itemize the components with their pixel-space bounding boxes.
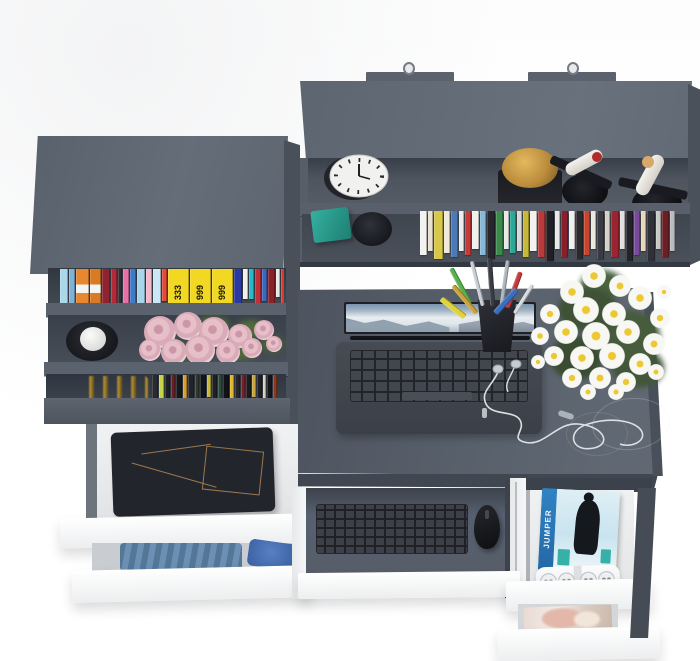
book-spine: [255, 269, 261, 305]
book-spine: [569, 211, 575, 249]
book-spine: [111, 269, 117, 306]
book-spine: [249, 269, 254, 299]
book-spine: [90, 269, 101, 306]
daisy-blossom: [554, 320, 578, 344]
daisy-blossom: [573, 297, 599, 323]
book-spine: [207, 375, 211, 397]
book-spine: [268, 269, 275, 306]
book-spine: [234, 269, 242, 305]
drawer-slide-rail: [86, 424, 97, 519]
white-candle-ball: [80, 327, 106, 351]
daisy-blossom: [531, 327, 549, 345]
bookshelf-base-board: [44, 398, 290, 424]
book-spine: [276, 269, 280, 297]
book-spine: [472, 211, 479, 249]
book-spine: [634, 211, 640, 255]
book-spine: [530, 211, 537, 251]
book-spine: [504, 211, 509, 249]
book-spine: 999: [212, 269, 233, 306]
book-spine: [459, 211, 464, 251]
book-spine: [597, 211, 604, 259]
book-spine: [60, 269, 68, 303]
drawer-front-lower[interactable]: [72, 565, 313, 603]
jumper-cover-art: [553, 489, 620, 574]
tray-front-panel[interactable]: [298, 571, 520, 599]
book-spine: [102, 269, 110, 306]
book-spine: [561, 211, 568, 257]
book-spine: [656, 211, 661, 249]
book-title: 999: [196, 285, 205, 300]
book-spine: [620, 211, 625, 249]
daisy-blossom: [582, 264, 606, 288]
book-spine: [146, 269, 152, 303]
book-spine: [195, 375, 199, 399]
book-spine: [76, 269, 89, 306]
daisy-blossom: [628, 286, 652, 310]
computer-mouse[interactable]: [474, 505, 500, 549]
book-spine: [555, 211, 560, 249]
book-spine: [480, 211, 486, 255]
wall-shelf-top-panel: [290, 81, 692, 161]
airplane-propeller: [592, 152, 602, 162]
book-title: 333: [174, 285, 183, 300]
jumper-book-cover: JUMPER: [538, 488, 620, 574]
rose-blossom: [266, 336, 282, 352]
book-spine: [218, 375, 222, 399]
book-spine: [465, 211, 471, 255]
pen-holder-group: [460, 260, 536, 354]
daisy-blossom: [540, 304, 560, 324]
book-spine: [159, 375, 164, 399]
rose-blossom: [216, 340, 240, 364]
book-spine: [69, 269, 75, 306]
book-spine: [252, 375, 256, 397]
book-spine: 999: [190, 269, 211, 306]
book-spine: [662, 211, 669, 257]
book-spine: [137, 269, 145, 306]
book-spine: [496, 211, 503, 255]
book-spine: [263, 375, 266, 398]
book-spine: [487, 211, 495, 259]
wall-shelf-book-row: [420, 211, 686, 264]
book-spine: [670, 211, 675, 251]
cover-teal-accent: [557, 549, 570, 566]
mouse-scroll-wheel: [485, 510, 489, 519]
book-spine: [434, 211, 443, 259]
book-spine: [641, 211, 646, 251]
book-spine: [230, 375, 234, 398]
laptop-spacebar[interactable]: [402, 392, 472, 400]
bookshelf-top-panel: [30, 136, 288, 274]
drawer-slide-rail: [526, 490, 530, 590]
hanging-hook-icon: [567, 62, 579, 75]
rose-flower-layer: [140, 312, 290, 368]
bookshelf-top-book-row: 333999999: [60, 269, 284, 306]
rose-blossom: [139, 339, 161, 361]
book-spine: [510, 211, 516, 253]
earbud-icon: [511, 360, 521, 368]
book-spine: [130, 269, 136, 303]
book-spine: [241, 375, 245, 400]
book-spine: [243, 269, 248, 299]
inline-remote: [557, 410, 574, 421]
book-spine: [281, 269, 284, 303]
book-spine: [523, 211, 529, 257]
book-spine: [428, 211, 433, 251]
rose-bouquet: [140, 312, 290, 368]
teal-storage-box: [310, 207, 352, 243]
book-spine: [171, 375, 175, 400]
audio-jack: [482, 408, 487, 418]
pen: [487, 258, 495, 306]
folded-jeans: [111, 427, 276, 517]
book-spine: [444, 211, 450, 253]
magazine-cover-photo: [574, 611, 601, 628]
book-spine: [591, 211, 596, 249]
jeans-stitch-pocket: [202, 446, 264, 496]
book-spine: [538, 211, 545, 257]
book-spine: [517, 211, 522, 251]
jumper-spine-title: JUMPER: [542, 509, 553, 549]
book-spine: [262, 269, 267, 301]
daisy-blossom: [650, 308, 670, 328]
pen: [470, 261, 485, 307]
book-spine: [451, 211, 458, 257]
book-spine: [123, 269, 129, 305]
daisy-blossom: [616, 320, 640, 344]
model-airplane-left: [548, 150, 620, 210]
cover-figure-silhouette: [573, 499, 602, 555]
book-spine: 333: [168, 269, 189, 306]
book-spine: [273, 375, 277, 399]
earbud-icon: [493, 365, 503, 373]
jeans-stitch-seam: [141, 444, 210, 455]
book-spine: [576, 211, 583, 259]
book-spine: [605, 211, 610, 251]
book-spine: [584, 211, 590, 255]
earphones-with-cable: [470, 352, 670, 452]
book-spine: [420, 211, 427, 255]
book-spine: [162, 269, 167, 301]
book-spine: [647, 211, 655, 261]
book-spine: [626, 211, 633, 261]
book-title: 999: [218, 285, 227, 300]
hanging-hook-icon: [403, 62, 415, 75]
book-spine: [546, 211, 554, 261]
book-spine: [611, 211, 619, 257]
desktop-keyboard[interactable]: [316, 504, 468, 554]
rose-blossom: [185, 335, 215, 365]
dark-bowl: [352, 212, 392, 246]
cover-teal-accent: [600, 549, 611, 564]
daisy-blossom: [657, 285, 671, 299]
furniture-render-canvas: 333999999: [0, 0, 700, 661]
book-spine: [118, 269, 122, 306]
book-spine: [183, 375, 187, 398]
book-spine: [153, 269, 161, 306]
alarm-clock: [320, 150, 396, 204]
rose-blossom: [242, 338, 262, 358]
airplane-nose-cone: [642, 156, 654, 168]
